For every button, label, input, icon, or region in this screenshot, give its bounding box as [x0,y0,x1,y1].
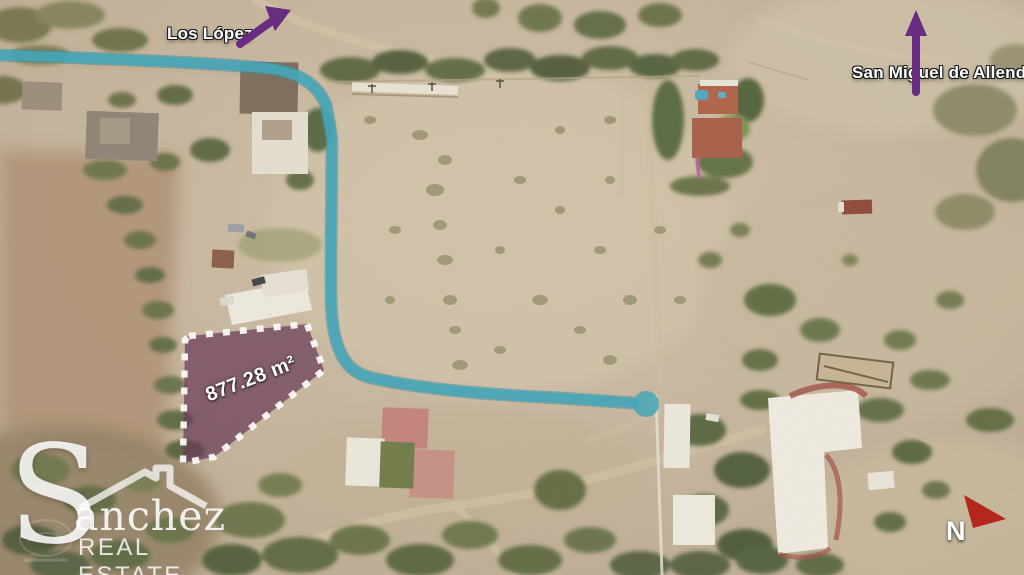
mini-watermark-icon [16,516,80,570]
logo-name-rest: anchez [74,496,226,537]
compass-north-label: N [946,516,966,547]
logo-subtitle: REAL ESTATE [78,534,238,575]
annotation-overlay: Los López San Miguel de Allende 877.28 m… [0,0,1024,575]
arrow-up-right-icon [232,2,296,50]
real-estate-aerial-listing: Los López San Miguel de Allende 877.28 m… [0,0,1024,575]
lot-area-label: 877.28 m² [184,345,317,414]
arrow-up-icon [903,8,929,98]
